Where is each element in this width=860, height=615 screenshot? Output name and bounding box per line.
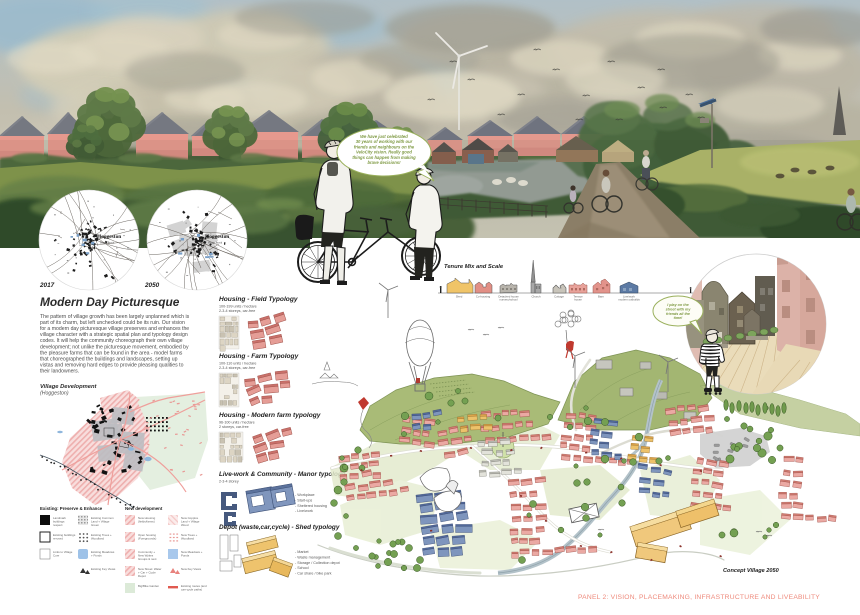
svg-text:2-3-4 storeys, car-free: 2-3-4 storeys, car-free — [219, 366, 255, 370]
svg-text:- Workplace: - Workplace — [295, 493, 315, 497]
svg-text:friends all the: friends all the — [666, 312, 690, 316]
svg-text:Barn: Barn — [598, 295, 604, 299]
svg-text:Woodland: Woodland — [181, 536, 194, 540]
svg-text:2-3-4 storeys, car-free: 2-3-4 storeys, car-free — [219, 309, 255, 313]
svg-text:- Car share / bike park: - Car share / bike park — [295, 572, 332, 576]
svg-text:+ Ponds: + Ponds — [91, 553, 102, 557]
svg-text:I play on the: I play on the — [667, 303, 689, 307]
svg-text:2017: 2017 — [39, 282, 55, 289]
svg-text:Existing Key Views: Existing Key Views — [91, 567, 116, 571]
svg-text:Hogge Brook: Hogge Brook — [100, 242, 115, 245]
svg-text:street with my: street with my — [666, 307, 692, 311]
svg-text:Housing - Modern farm typology: Housing - Modern farm typology — [219, 412, 321, 419]
svg-text:time!: time! — [674, 316, 684, 320]
svg-text:2050: 2050 — [144, 282, 160, 289]
svg-text:car+cycle paths): car+cycle paths) — [181, 587, 202, 591]
svg-text:Ponds: Ponds — [181, 553, 190, 557]
svg-text:Cottage: Cottage — [554, 295, 564, 299]
svg-text:modern outbuilds: modern outbuilds — [618, 298, 640, 302]
svg-text:Existing: Preserve & Enhance: Existing: Preserve & Enhance — [40, 506, 103, 511]
svg-text:- Sheltered housing: - Sheltered housing — [295, 504, 327, 508]
svg-text:Village Development: Village Development — [40, 384, 98, 390]
svg-text:Housing - Field Typology: Housing - Field Typology — [219, 296, 298, 303]
svg-text:Woodland: Woodland — [91, 536, 104, 540]
svg-text:- Live/work: - Live/work — [295, 509, 313, 513]
svg-text:(Foregrounds): (Foregrounds) — [138, 536, 156, 540]
svg-text:Housing - Farm Typology: Housing - Farm Typology — [219, 353, 299, 360]
svg-text:Hoggeston: Hoggeston — [97, 234, 121, 240]
svg-text:re-used: re-used — [53, 536, 63, 540]
svg-text:- Market: - Market — [295, 550, 309, 554]
svg-text:Groups & next: Groups & next — [138, 557, 157, 561]
svg-text:- Waste management: - Waste management — [295, 555, 330, 559]
svg-text:Hogge Brook: Hogge Brook — [208, 242, 223, 245]
svg-text:house: house — [574, 298, 582, 302]
svg-text:their landowners.: their landowners. — [40, 368, 79, 374]
svg-text:Big/Bike Garden: Big/Bike Garden — [138, 584, 159, 588]
svg-text:nursery/school: nursery/school — [499, 298, 518, 302]
svg-text:respect: respect — [53, 523, 63, 527]
svg-text:Wood: Wood — [181, 523, 189, 527]
svg-text:Shed: Shed — [456, 295, 463, 299]
svg-text:New development: New development — [125, 506, 163, 511]
svg-text:Depot: Depot — [138, 574, 146, 578]
svg-text:Depot (waste,car,cycle) - Shed: Depot (waste,car,cycle) - Shed typology — [219, 524, 340, 531]
svg-text:- Start-ups: - Start-ups — [295, 498, 312, 502]
svg-text:New Key Views: New Key Views — [181, 567, 202, 571]
svg-text:2-3-4 storey: 2-3-4 storey — [219, 480, 239, 484]
svg-text:Green: Green — [91, 523, 99, 527]
svg-text:- Storage / Collection depot: - Storage / Collection depot — [295, 561, 340, 565]
svg-text:brave decisions!: brave decisions! — [367, 160, 401, 165]
svg-text:Modern Day Picturesque: Modern Day Picturesque — [40, 295, 180, 309]
svg-text:Live-work & Community - Manor: Live-work & Community - Manor typology — [219, 471, 346, 478]
svg-text:Core: Core — [53, 553, 60, 557]
svg-text:PANEL 2: VISION, PLACEMAKING,: PANEL 2: VISION, PLACEMAKING, INFRASTRUC… — [578, 594, 820, 601]
svg-text:2 storeys, car-free: 2 storeys, car-free — [219, 425, 249, 429]
svg-text:Tenure Mix and Scale: Tenure Mix and Scale — [444, 264, 504, 270]
svg-text:(fields/farms): (fields/farms) — [138, 519, 155, 523]
svg-text:- School: - School — [295, 566, 309, 570]
svg-text:Church: Church — [531, 295, 540, 299]
svg-text:Hoggeston: Hoggeston — [205, 234, 229, 240]
svg-text:Concept Village 2050: Concept Village 2050 — [723, 568, 780, 574]
svg-text:(Hoggeston): (Hoggeston) — [40, 391, 69, 397]
svg-text:Co-housing: Co-housing — [476, 295, 491, 299]
